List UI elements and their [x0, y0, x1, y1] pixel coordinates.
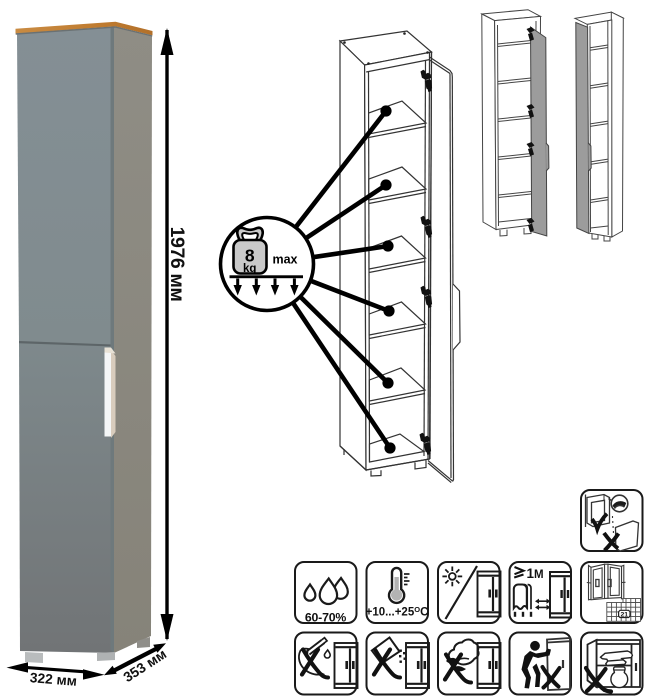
svg-text:322 мм: 322 мм: [29, 670, 77, 689]
svg-text:kg: kg: [243, 263, 256, 275]
svg-text:1M: 1M: [526, 566, 543, 581]
svg-text:21: 21: [621, 611, 629, 618]
svg-text:max: max: [272, 253, 297, 267]
svg-text:1976 мм: 1976 мм: [166, 227, 188, 302]
svg-text:60-70%: 60-70%: [305, 611, 346, 625]
